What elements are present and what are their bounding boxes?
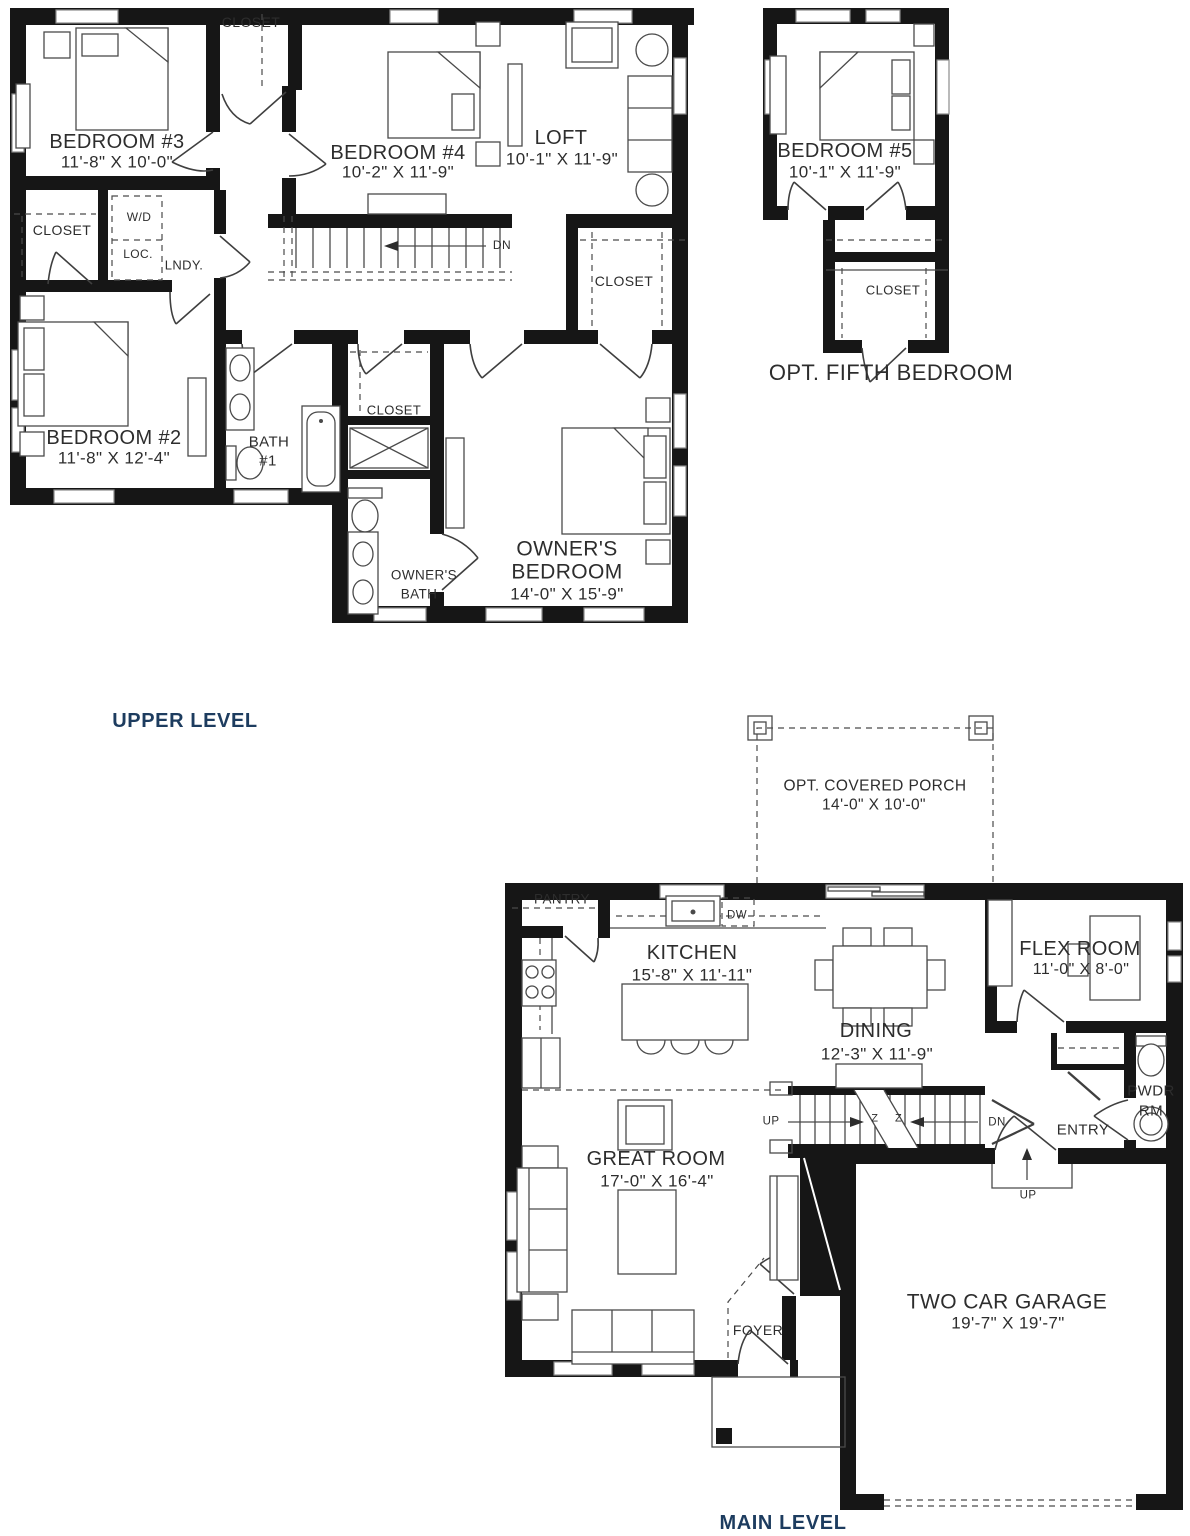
great-room-name: GREAT ROOM [587,1149,726,1169]
wd-label: W/D [127,211,152,223]
stairs-break-label: Z Z [871,1114,909,1125]
kitchen-dims: 15'-8" X 11'-11" [632,967,753,984]
great-room-dims: 17'-0" X 16'-4" [600,1173,713,1190]
fridge-icon [522,1038,560,1088]
stove-icon [522,960,556,1006]
upper-level-caption: UPPER LEVEL [112,711,258,731]
loft-furniture-icon [508,22,672,206]
main-level-caption: MAIN LEVEL [719,1513,846,1533]
stairs-up2-label: UP [1020,1190,1037,1202]
bed4-icon [368,22,500,214]
stairs-up-label: UP [763,1116,780,1128]
kitchen-name: KITCHEN [647,943,738,963]
loft-name: LOFT [535,128,588,148]
bedroom3-name: BEDROOM #3 [49,132,184,152]
mechanical-shaft [800,1153,844,1296]
fifth-bedroom-plan [763,8,949,382]
foyer-boundary [728,1258,764,1358]
bedroom2-name: BEDROOM #2 [46,428,181,448]
flex-room-dims: 11'-0" X 8'-0" [1033,962,1130,978]
owners-bedroom-name-1: OWNER'S [516,539,617,560]
bedroom4-name: BEDROOM #4 [330,143,465,163]
bedroom4-dims: 10'-2" X 11'-9" [342,164,454,181]
floor-plan-page: BEDROOM #3 11'-8" X 10'-0" CLOSET BEDROO… [0,0,1190,1536]
bedroom5-dims: 10'-1" X 11'-9" [789,164,901,181]
entry-closet-icon [1054,1033,1126,1067]
pwdr-label-2: RM [1139,1104,1163,1119]
porch-name: OPT. COVERED PORCH [784,778,967,794]
stairs-dn-label: DN [988,1117,1005,1129]
closet-top-label: CLOSET [222,15,280,29]
entry-label: ENTRY [1057,1123,1110,1138]
closet-walkin-label: CLOSET [595,274,653,288]
closet-left-label: CLOSET [33,223,91,237]
bath1-fixtures-icon [226,348,340,492]
pwdr-label-1: PWDR [1127,1084,1174,1099]
upper-stairs-dn-label: DN [493,239,511,251]
porch-dims: 14'-0" X 10'-0" [822,797,926,813]
foyer-label: FOYER [733,1323,783,1337]
opt-fifth-bedroom-caption: OPT. FIFTH BEDROOM [769,362,1013,384]
upper-level-plan [10,8,694,623]
bedroom2-dims: 11'-8" X 12'-4" [58,450,170,467]
owners-bath-label-2: BATH [401,587,438,601]
dining-table-icon [815,928,945,1088]
garage-door-icon [884,1500,1136,1506]
bedroom3-dims: 11'-8" X 10'-0" [61,154,173,171]
sliding-door-icon [826,885,924,898]
front-stoop-icon [712,1377,845,1447]
wd-loc-label: LOC. [123,248,153,260]
dining-dims: 12'-3" X 11'-9" [821,1046,933,1063]
closet-mid-label: CLOSET [367,404,421,417]
bed3-icon [16,28,168,148]
pantry-label: PANTRY [534,892,590,906]
dishwasher-label: DW [727,910,747,922]
bath1-label-2: #1 [259,454,277,469]
garage-dims: 19'-7" X 19'-7" [951,1315,1064,1332]
bath1-label-1: BATH [249,435,290,450]
loft-dims: 10'-1" X 11'-9" [506,151,618,168]
dining-name: DINING [840,1021,912,1041]
kitchen-counter-icon [522,896,826,1088]
laundry-label: LNDY. [165,259,204,272]
bedroom5-name: BEDROOM #5 [777,141,912,161]
garage-name: TWO CAR GARAGE [907,1292,1107,1313]
owners-bath-label-1: OWNER'S [391,568,457,582]
closet-bed5-label: CLOSET [866,284,920,297]
kitchen-island-icon [622,984,748,1054]
owners-bedroom-dims: 14'-0" X 15'-9" [510,586,623,603]
owners-bedroom-name-2: BEDROOM [511,562,622,583]
main-level-plan [505,716,1183,1510]
flex-room-name: FLEX ROOM [1019,939,1140,959]
